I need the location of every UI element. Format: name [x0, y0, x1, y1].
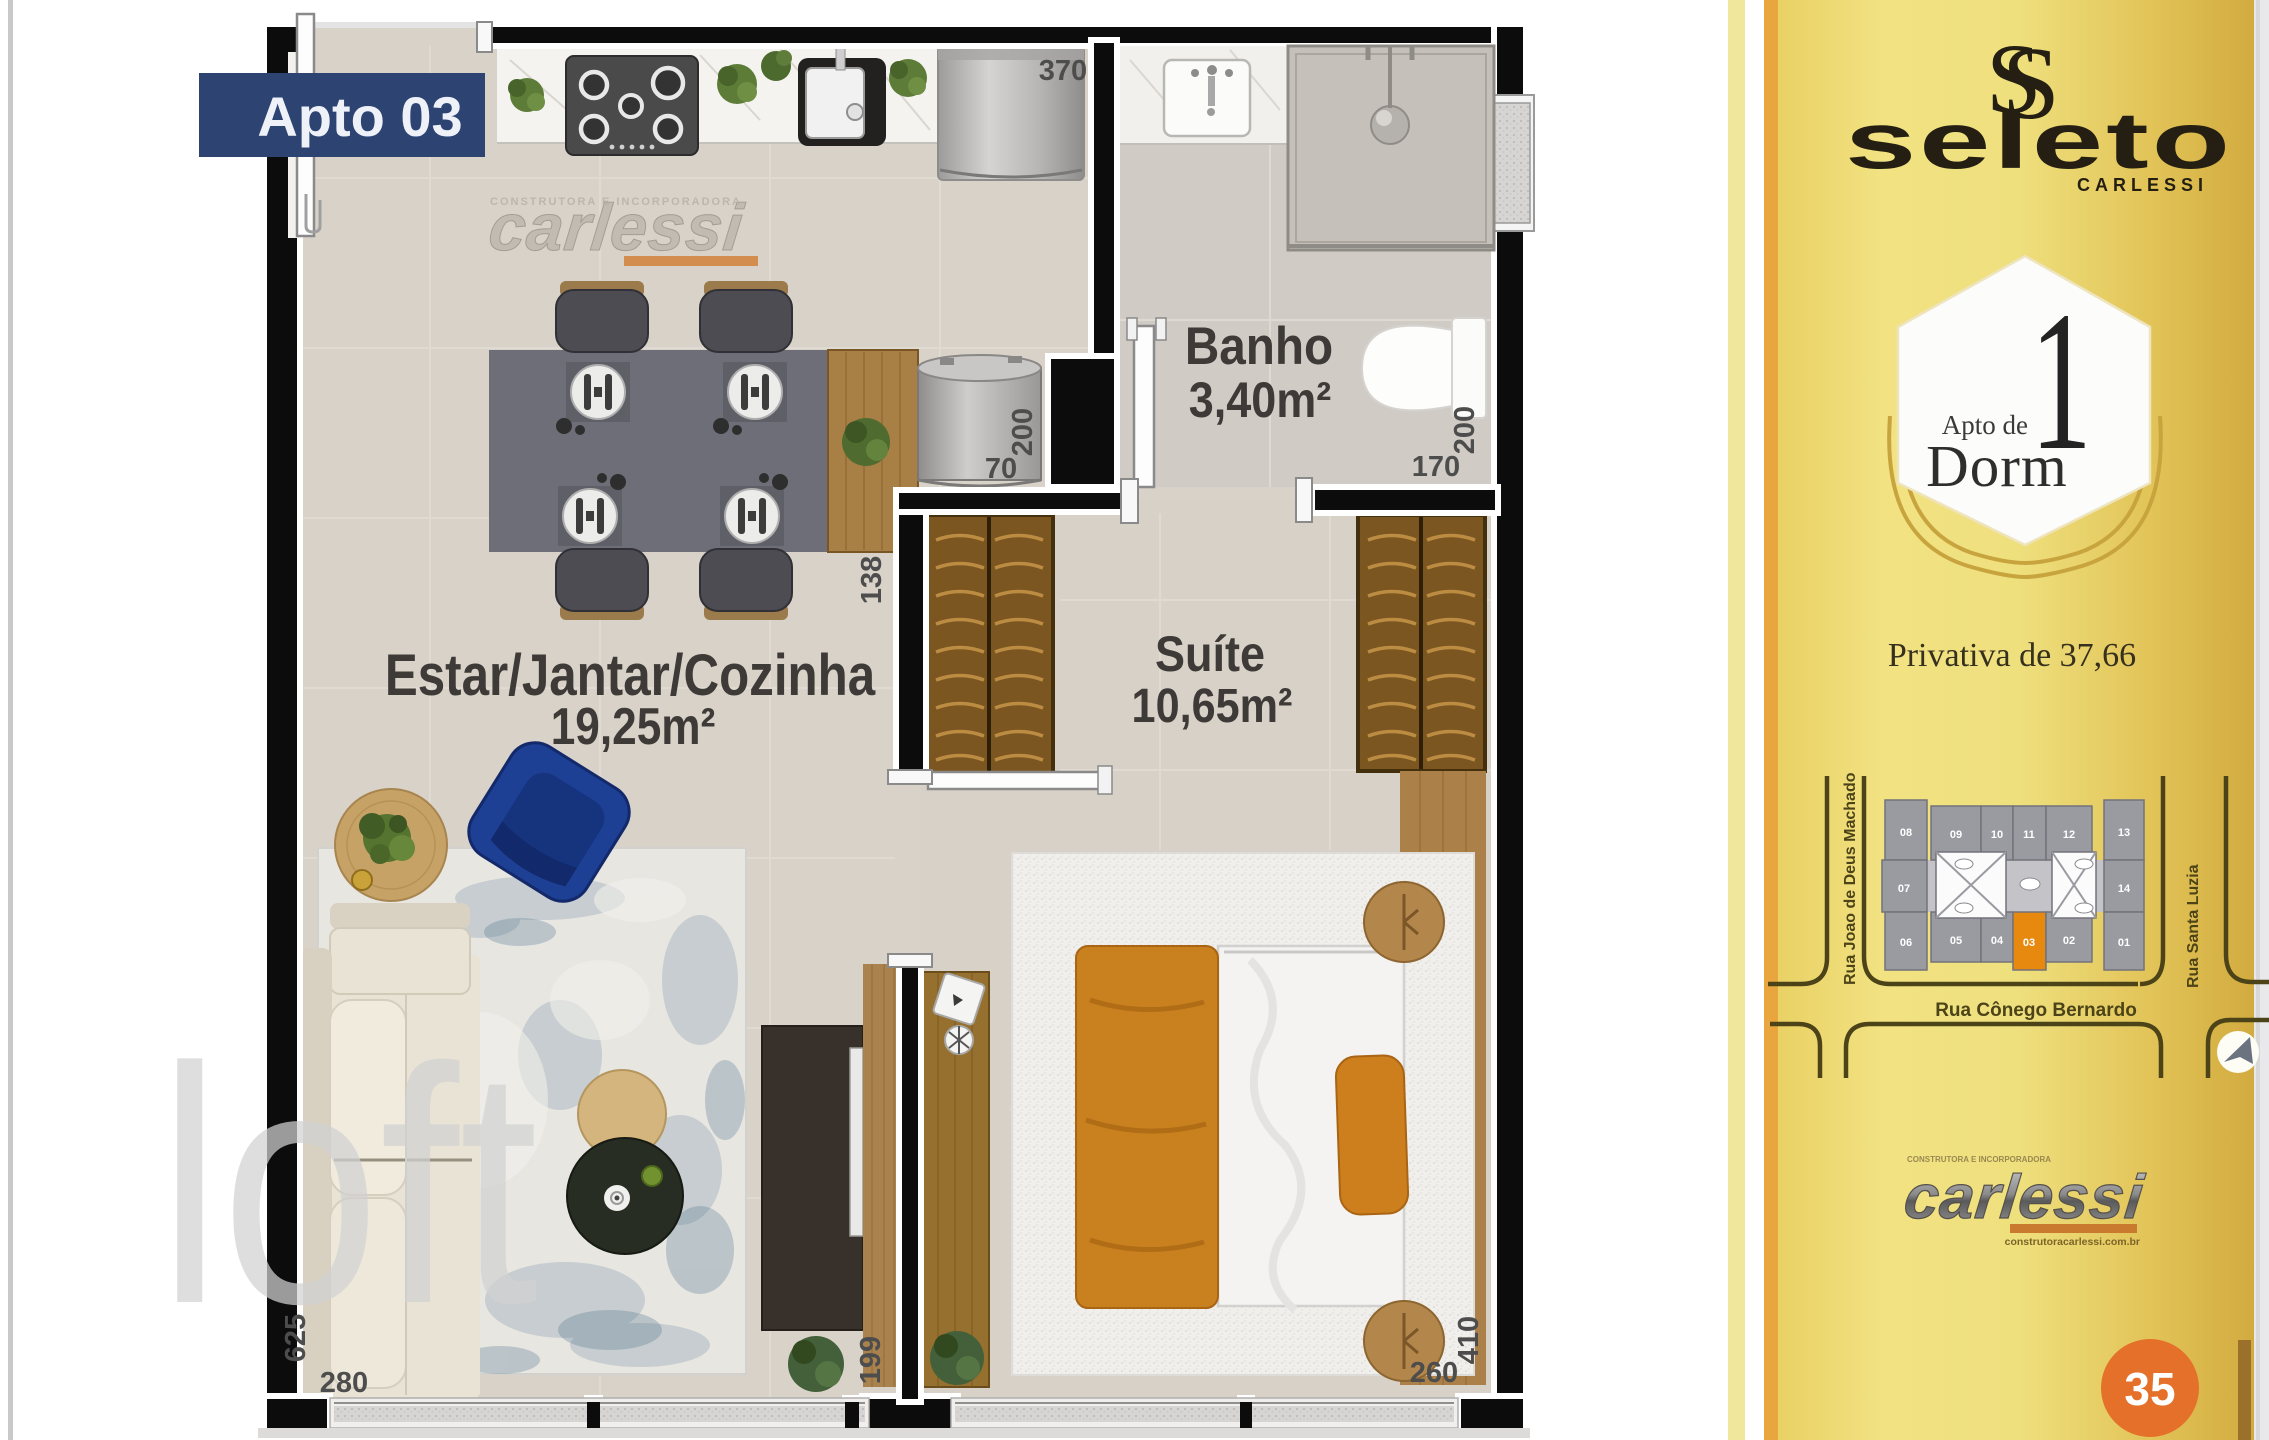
svg-text:200: 200: [1449, 406, 1481, 454]
svg-text:Rua Joao de Deus Machado: Rua Joao de Deus Machado: [1842, 772, 1859, 985]
svg-text:Rua Santa Luzia: Rua Santa Luzia: [2185, 864, 2202, 988]
svg-text:07: 07: [1898, 883, 1910, 895]
svg-text:70: 70: [985, 453, 1017, 485]
svg-text:01: 01: [2118, 937, 2130, 949]
svg-text:200: 200: [1007, 408, 1039, 456]
svg-text:19,25m²: 19,25m²: [551, 698, 716, 756]
svg-text:35: 35: [2124, 1363, 2175, 1415]
svg-text:10,65m²: 10,65m²: [1132, 679, 1293, 733]
svg-text:03: 03: [2023, 937, 2035, 949]
svg-text:08: 08: [1900, 827, 1912, 839]
svg-text:09: 09: [1950, 829, 1962, 841]
svg-text:carlessi: carlessi: [1901, 1163, 2148, 1232]
svg-text:12: 12: [2063, 829, 2075, 841]
svg-text:11: 11: [2023, 829, 2035, 841]
svg-text:loft: loft: [158, 999, 539, 1374]
svg-text:Suíte: Suíte: [1155, 627, 1265, 683]
svg-text:410: 410: [1453, 1316, 1485, 1364]
svg-text:260: 260: [1410, 1357, 1458, 1389]
svg-text:Rua Cônego Bernardo: Rua Cônego Bernardo: [1935, 1000, 2137, 1021]
svg-text:Apto 03: Apto 03: [257, 85, 462, 148]
svg-text:10: 10: [1991, 829, 2003, 841]
svg-text:05: 05: [1950, 935, 1962, 947]
svg-text:construtoracarlessi.com.br: construtoracarlessi.com.br: [2005, 1236, 2140, 1248]
svg-text:170: 170: [1412, 451, 1460, 483]
svg-text:Privativa de 37,66: Privativa de 37,66: [1888, 637, 2136, 674]
svg-text:138: 138: [856, 556, 888, 604]
svg-text:CARLESSI: CARLESSI: [2077, 175, 2208, 195]
svg-text:3,40m²: 3,40m²: [1189, 373, 1332, 429]
svg-text:02: 02: [2063, 935, 2075, 947]
svg-text:CONSTRUTORA E INCORPORADORA: CONSTRUTORA E INCORPORADORA: [490, 196, 742, 208]
svg-text:Banho: Banho: [1185, 316, 1333, 376]
svg-text:370: 370: [1039, 55, 1087, 87]
svg-text:06: 06: [1900, 937, 1912, 949]
svg-text:14: 14: [2118, 883, 2131, 895]
svg-text:199: 199: [855, 1336, 887, 1384]
svg-text:Dorm: Dorm: [1926, 433, 2068, 499]
svg-text:seleto: seleto: [1845, 96, 2233, 185]
svg-text:13: 13: [2118, 827, 2130, 839]
svg-text:04: 04: [1991, 935, 2004, 947]
